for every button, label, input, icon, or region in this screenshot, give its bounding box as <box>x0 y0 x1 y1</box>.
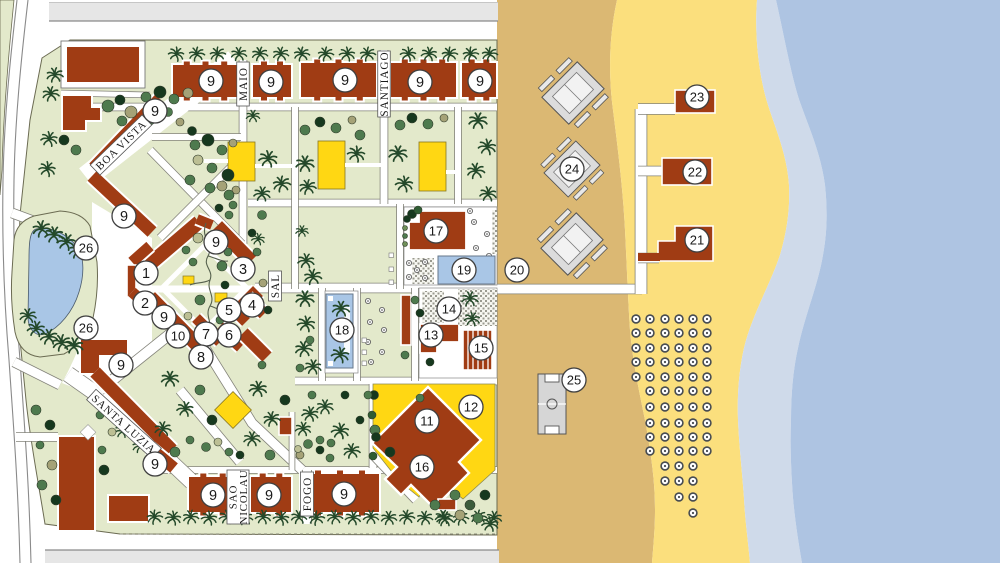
svg-text:6: 6 <box>225 328 233 344</box>
svg-text:21: 21 <box>690 233 704 248</box>
svg-text:9: 9 <box>151 104 159 120</box>
svg-text:9: 9 <box>209 488 217 504</box>
svg-text:18: 18 <box>335 323 349 338</box>
svg-text:9: 9 <box>117 358 125 374</box>
svg-text:9: 9 <box>265 488 273 504</box>
svg-text:9: 9 <box>267 75 275 91</box>
svg-text:SANTIAGO: SANTIAGO <box>379 51 391 116</box>
svg-text:11: 11 <box>420 414 434 429</box>
svg-text:8: 8 <box>197 350 205 366</box>
svg-text:26: 26 <box>79 321 93 336</box>
svg-text:2: 2 <box>141 296 149 312</box>
svg-text:9: 9 <box>120 209 128 225</box>
svg-text:19: 19 <box>457 263 471 278</box>
svg-text:23: 23 <box>690 90 704 105</box>
svg-text:7: 7 <box>202 327 210 343</box>
svg-text:5: 5 <box>225 303 233 319</box>
svg-text:20: 20 <box>510 263 524 278</box>
svg-text:9: 9 <box>341 73 349 89</box>
svg-text:1: 1 <box>142 266 150 282</box>
svg-text:10: 10 <box>171 329 185 344</box>
svg-text:14: 14 <box>442 302 456 317</box>
svg-text:4: 4 <box>248 298 256 314</box>
svg-text:15: 15 <box>474 341 488 356</box>
svg-text:9: 9 <box>416 75 424 91</box>
svg-text:9: 9 <box>340 487 348 503</box>
svg-text:NICOLAU: NICOLAU <box>238 469 250 524</box>
svg-text:9: 9 <box>160 310 168 326</box>
svg-text:9: 9 <box>151 457 159 473</box>
svg-text:24: 24 <box>565 162 579 177</box>
svg-text:17: 17 <box>429 224 443 239</box>
svg-text:16: 16 <box>415 460 429 475</box>
svg-text:22: 22 <box>688 165 702 180</box>
svg-text:SAL: SAL <box>270 274 282 298</box>
svg-text:9: 9 <box>476 74 484 90</box>
svg-text:9: 9 <box>212 235 220 251</box>
svg-text:9: 9 <box>207 74 215 90</box>
svg-text:25: 25 <box>567 373 581 388</box>
svg-text:13: 13 <box>424 328 438 343</box>
svg-text:MAIO: MAIO <box>238 67 250 101</box>
svg-text:12: 12 <box>464 400 478 415</box>
svg-text:FOGO: FOGO <box>302 477 314 511</box>
svg-text:26: 26 <box>79 241 93 256</box>
svg-text:3: 3 <box>239 262 247 278</box>
